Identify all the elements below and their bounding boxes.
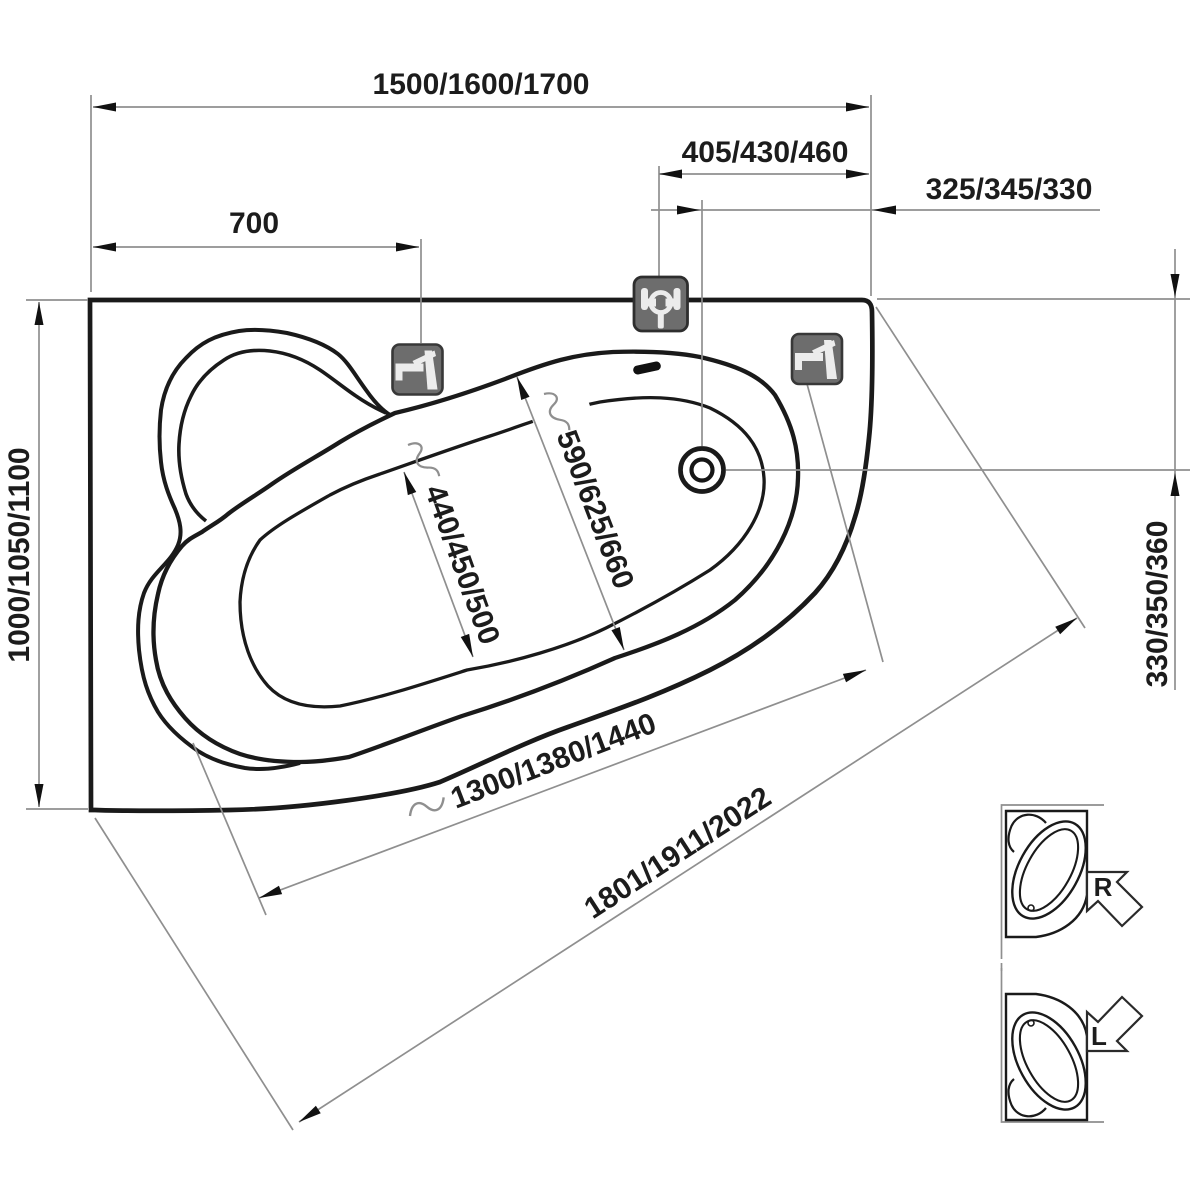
svg-text:330/350/360: 330/350/360 [1141, 521, 1174, 688]
svg-text:325/345/330: 325/345/330 [926, 173, 1093, 206]
svg-text:700: 700 [229, 207, 279, 240]
svg-text:1500/1600/1700: 1500/1600/1700 [373, 68, 590, 101]
svg-text:1000/1050/1100: 1000/1050/1100 [3, 447, 36, 662]
svg-text:405/430/460: 405/430/460 [682, 136, 849, 169]
svg-text:L: L [1091, 1021, 1107, 1051]
svg-text:R: R [1094, 872, 1113, 902]
